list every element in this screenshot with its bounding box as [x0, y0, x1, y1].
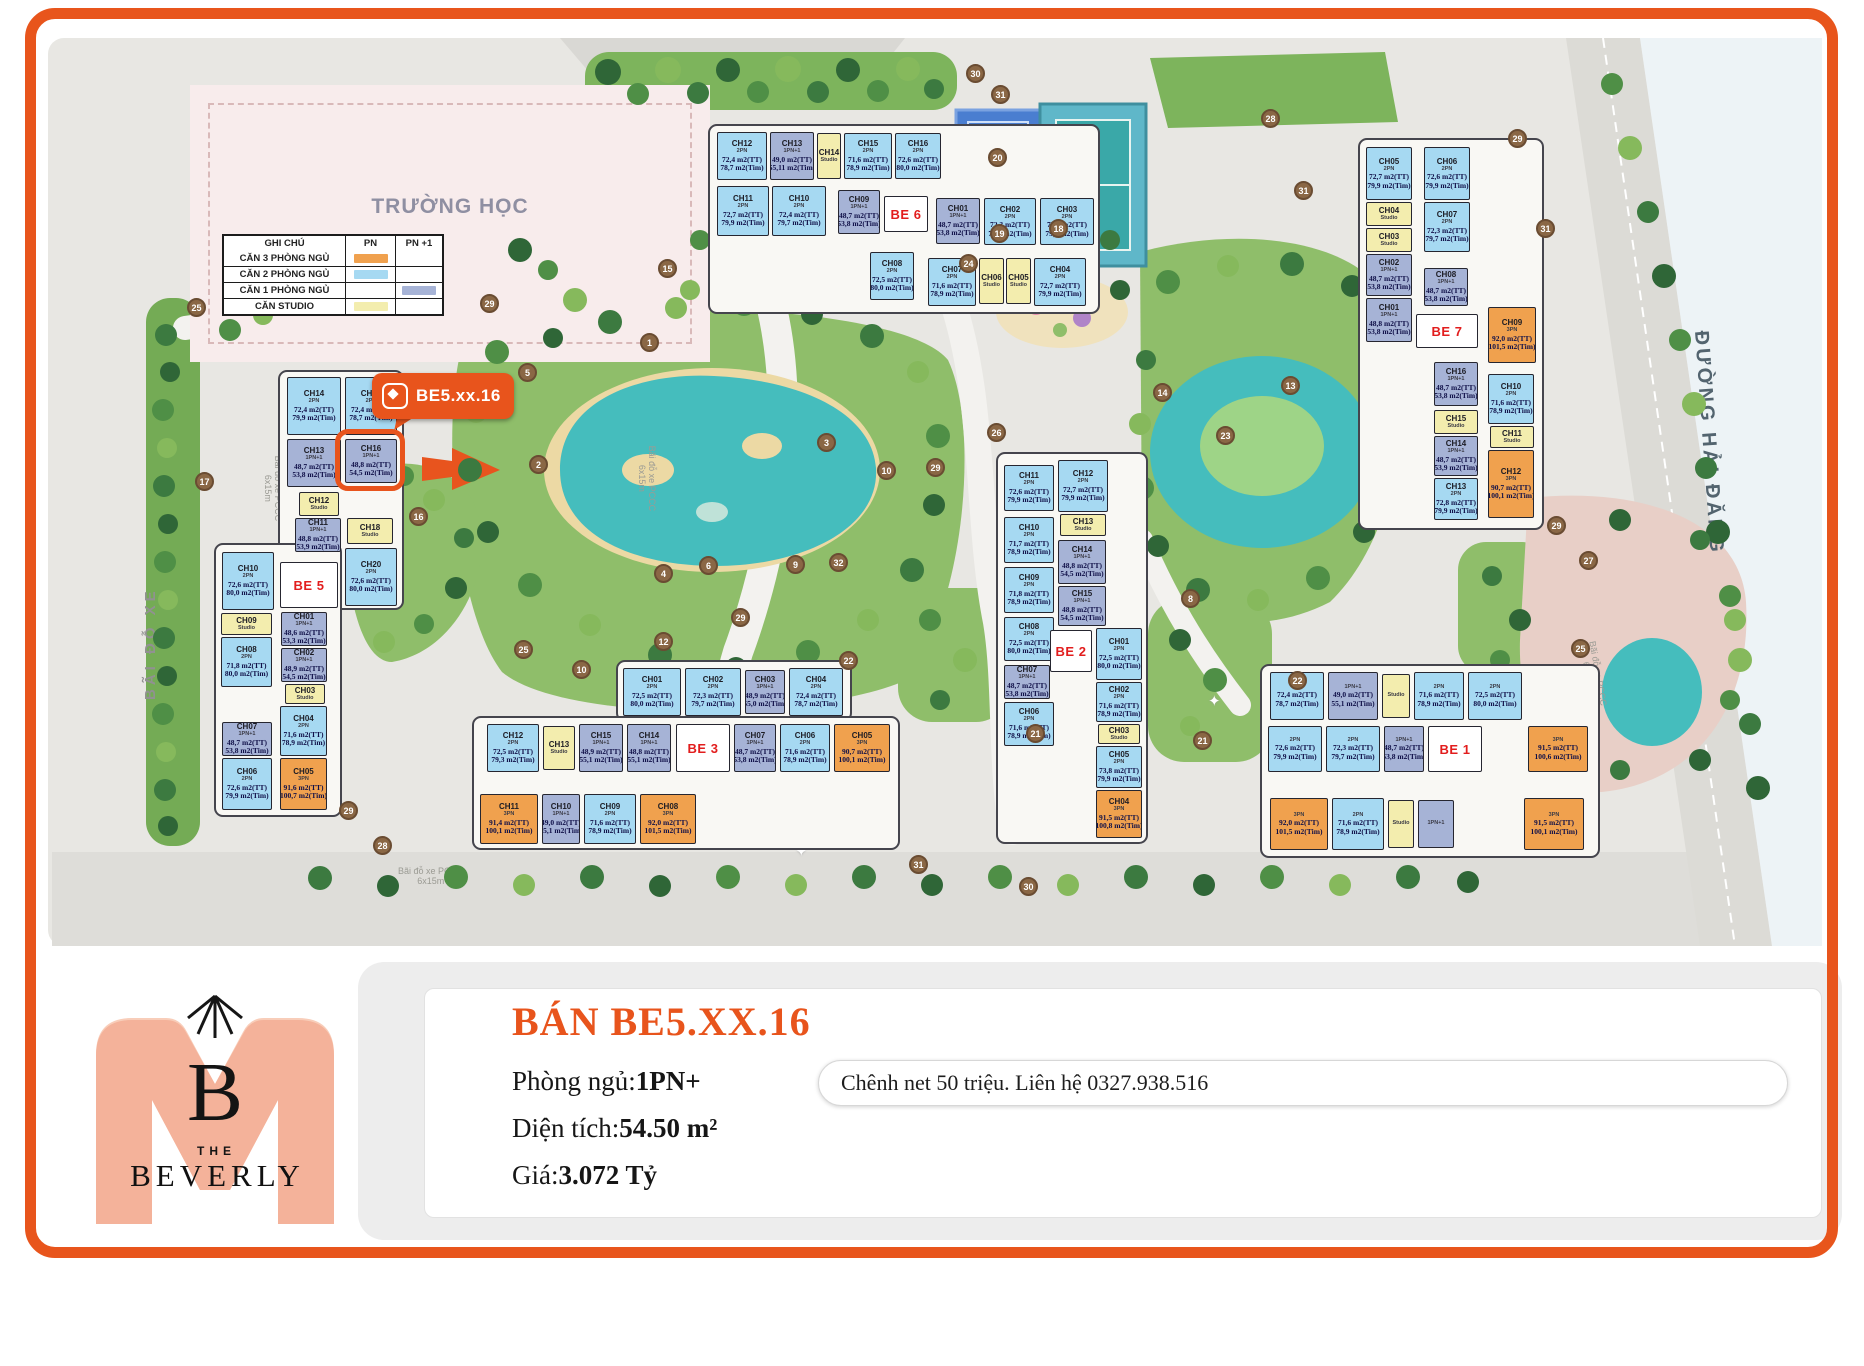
- landmark-marker-25: 25: [1571, 639, 1590, 658]
- unit-type: Studio: [238, 626, 255, 632]
- unit-CH14[interactable]: CH141PN+148,8 m2(TT)55,1 m2(Tim): [627, 724, 671, 772]
- parking-label-line2: 6x15m: [262, 456, 272, 522]
- unit-id: CH11: [1019, 472, 1039, 480]
- unit-area-tt: 71,6 m2(TT): [590, 819, 630, 827]
- tree-icon: [1695, 457, 1717, 479]
- unit-type: Studio: [820, 158, 837, 164]
- unit-area-tt: 48,7 m2(TT): [227, 739, 267, 747]
- unit-type: 2PN: [1114, 760, 1125, 766]
- tree-icon: [156, 742, 176, 762]
- unit-type: 3PN: [663, 812, 674, 818]
- unit-area-tt: 91,4 m2(TT): [489, 819, 529, 827]
- unit-id: CH10: [238, 565, 258, 573]
- unit-CH11[interactable]: CH111PN+148,8 m2(TT)53,9 m2(Tim): [295, 518, 341, 552]
- unit-CH08[interactable]: CH082PN72,5 m2(TT)80,0 m2(Tim): [870, 252, 914, 300]
- unit-CH14[interactable]: CH141PN+148,8 m2(TT)54,5 m2(Tim): [1058, 540, 1106, 584]
- unit-cell[interactable]: 3PN92,0 m2(TT)101,5 m2(Tim): [1270, 798, 1328, 850]
- unit-area-tt: 71,6 m2(TT): [848, 156, 888, 164]
- tree-icon: [377, 875, 399, 897]
- unit-id: CH02: [1109, 686, 1129, 694]
- unit-CH03[interactable]: CH03Studio: [285, 684, 325, 704]
- unit-CH14[interactable]: CH14Studio: [817, 133, 841, 179]
- unit-type: 1PN+1: [1448, 377, 1465, 383]
- unit-area-tt: 72,5 m2(TT): [632, 692, 672, 700]
- unit-area-tim: 79,9 m2(Tim): [292, 414, 335, 422]
- unit-CH09[interactable]: CH093PN92,0 m2(TT)101,5 m2(Tim): [1488, 307, 1536, 363]
- unit-CH11[interactable]: CH112PN72,7 m2(TT)79,9 m2(Tim): [717, 186, 769, 236]
- unit-type: 2PN: [1442, 220, 1453, 226]
- unit-CH09[interactable]: CH092PN71,8 m2(TT)78,9 m2(Tim): [1004, 567, 1054, 613]
- unit-area-tt: 48,7 m2(TT): [1436, 384, 1476, 392]
- unit-area-tim: 80,0 m2(Tim): [870, 284, 913, 292]
- listing-title: BÁN BE5.XX.16: [512, 998, 811, 1045]
- tree-icon: [1724, 609, 1746, 631]
- tree-icon: [454, 528, 474, 548]
- unit-area-tt: 48,8 m2(TT): [1062, 562, 1102, 570]
- unit-id: CH06: [1437, 158, 1457, 166]
- unit-CH12[interactable]: CH122PN72,5 m2(TT)79,3 m2(Tim): [487, 724, 539, 772]
- unit-area-tim: 79,9 m2(Tim): [721, 219, 764, 227]
- unit-CH09[interactable]: CH092PN71,6 m2(TT)78,9 m2(Tim): [584, 794, 636, 844]
- unit-cell[interactable]: 2PN72,3 m2(TT)79,7 m2(Tim): [1326, 726, 1380, 772]
- unit-area-tim: 78,9 m2(Tim): [1007, 598, 1050, 606]
- unit-id: CH10: [1019, 524, 1039, 532]
- tree-icon: [716, 865, 740, 889]
- unit-area-tt: 72,4 m2(TT): [722, 156, 762, 164]
- unit-type: Studio: [361, 533, 378, 539]
- unit-id: CH15: [591, 732, 611, 740]
- badge-logo-icon: [382, 383, 408, 409]
- tree-icon: [1396, 865, 1420, 889]
- unit-id: CH05: [1109, 751, 1129, 759]
- tree-icon: [747, 81, 769, 103]
- unit-CH03[interactable]: CH032PN72,6 m2(TT)79,9 m2(Tim): [1040, 198, 1094, 245]
- unit-type: 2PN: [794, 204, 805, 210]
- unit-CH20[interactable]: CH202PN72,6 m2(TT)80,0 m2(Tim): [345, 548, 397, 606]
- tree-icon: [1306, 566, 1330, 590]
- unit-type: 2PN: [800, 741, 811, 747]
- tree-icon: [157, 438, 177, 458]
- unit-area-tim: 79,9 m2(Tim): [1097, 775, 1140, 783]
- unit-area-tt: 71,6 m2(TT): [1491, 399, 1531, 407]
- unit-id: CH11: [1502, 430, 1522, 438]
- unit-area-tt: 48,7 m2(TT): [1369, 275, 1409, 283]
- tree-icon: [867, 80, 889, 102]
- unit-area-tt: 48,8 m2(TT): [1369, 320, 1409, 328]
- unit-area-tt: 72,6 m2(TT): [351, 577, 391, 585]
- unit-area-tt: 92,0 m2(TT): [648, 819, 688, 827]
- tree-icon: [153, 475, 175, 497]
- unit-area-tim: 79,9 m2(Tim): [1007, 496, 1050, 504]
- unit-CH07[interactable]: CH071PN+148,7 m2(TT)53,8 m2(Tim): [222, 722, 272, 756]
- unit-CH10[interactable]: CH101PN+149,0 m2(TT)55,1 m2(Tim): [542, 794, 580, 844]
- unit-id: CH15: [1072, 590, 1092, 598]
- legend-color-swatch: [354, 254, 388, 263]
- landmark-marker-10: 10: [877, 461, 896, 480]
- unit-type: 1PN+1: [1438, 280, 1455, 286]
- unit-CH02[interactable]: CH021PN+148,7 m2(TT)53,8 m2(Tim): [1366, 254, 1412, 296]
- unit-CH01[interactable]: CH012PN72,5 m2(TT)80,0 m2(Tim): [1096, 628, 1142, 680]
- unit-type: 3PN: [298, 777, 309, 783]
- unit-id: CH09: [236, 617, 256, 625]
- unit-CH07[interactable]: CH072PN72,3 m2(TT)79,7 m2(Tim): [1424, 202, 1470, 252]
- unit-CH16[interactable]: CH161PN+148,7 m2(TT)53,8 m2(Tim): [1434, 362, 1478, 406]
- unit-type: 2PN: [1078, 479, 1089, 485]
- unit-CH13[interactable]: CH132PN72,8 m2(TT)79,9 m2(Tim): [1434, 478, 1478, 520]
- tree-icon: [857, 609, 879, 631]
- unit-CH07[interactable]: CH071PN+148,7 m2(TT)53,8 m2(Tim): [1004, 665, 1050, 699]
- landmark-marker-27: 27: [1579, 551, 1598, 570]
- unit-area-tim: 80,0 m2(Tim): [1473, 700, 1516, 708]
- unit-area-tim: 78,9 m2(Tim): [588, 827, 631, 835]
- landmark-marker-2: 2: [529, 455, 548, 474]
- unit-area-tim: 79,7 m2(Tim): [1331, 753, 1374, 761]
- block-label-BE2[interactable]: BE 2: [1050, 630, 1092, 672]
- unit-id: CH10: [551, 803, 571, 811]
- unit-area-tim: 55,0 m2(Tim): [745, 700, 785, 708]
- selected-unit-badge[interactable]: BE5.xx.16: [372, 373, 514, 419]
- tree-icon: [1169, 629, 1191, 651]
- unit-area-tt: 48,8 m2(TT): [351, 461, 391, 469]
- unit-area-tt: 71,6 m2(TT): [1338, 819, 1378, 827]
- unit-id: CH03: [1057, 206, 1077, 214]
- unit-area-tim: 79,9 m2(Tim): [1434, 507, 1477, 515]
- legend-swatch-pn: [346, 299, 396, 314]
- unit-CH04[interactable]: CH042PN71,6 m2(TT)78,9 m2(Tim): [280, 706, 327, 756]
- tree-icon: [953, 648, 977, 672]
- unit-area-tim: 80,0 m2(Tim): [896, 164, 939, 172]
- unit-CH04[interactable]: CH042PN72,7 m2(TT)79,9 m2(Tim): [1034, 258, 1086, 306]
- unit-CH18[interactable]: CH18Studio: [347, 518, 393, 544]
- unit-type: 1PN+1: [641, 741, 658, 747]
- unit-CH12[interactable]: CH122PN72,4 m2(TT)78,7 m2(Tim): [717, 132, 767, 180]
- unit-type: Studio: [1380, 216, 1397, 222]
- landmark-marker-29: 29: [1547, 516, 1566, 535]
- block-label-text: BE 2: [1056, 645, 1087, 658]
- unit-area-tt: 71,7 m2(TT): [1009, 540, 1049, 548]
- unit-area-tim: 100,7 m2(Tim): [280, 792, 327, 800]
- tree-icon: [1689, 749, 1711, 771]
- unit-CH14[interactable]: CH142PN72,4 m2(TT)79,9 m2(Tim): [287, 377, 341, 435]
- landmark-marker-30: 30: [966, 64, 985, 83]
- unit-area-tt: 49,0 m2(TT): [1333, 691, 1373, 699]
- unit-id: CH02: [294, 649, 314, 657]
- unit-id: CH05: [1379, 158, 1399, 166]
- unit-CH10[interactable]: CH102PN71,6 m2(TT)78,9 m2(Tim): [1488, 374, 1534, 424]
- unit-id: CH04: [806, 676, 826, 684]
- unit-id: CH15: [1446, 415, 1466, 423]
- unit-CH07[interactable]: CH071PN+148,7 m2(TT)53,8 m2(Tim): [734, 724, 776, 772]
- unit-area-tt: 72,5 m2(TT): [1099, 654, 1139, 662]
- unit-CH04[interactable]: CH04Studio: [1366, 202, 1412, 226]
- legend-row-label: CĂN 3 PHÒNG NGỦ: [224, 251, 346, 266]
- legend-color-swatch: [354, 270, 388, 279]
- tree-icon: [716, 58, 740, 82]
- legend-row: CĂN 3 PHÒNG NGỦ: [224, 251, 442, 266]
- unit-id: CH09: [1019, 574, 1039, 582]
- unit-area-tt: 48,7 m2(TT): [294, 463, 334, 471]
- unit-type: 2PN: [242, 777, 253, 783]
- unit-CH05[interactable]: CH053PN90,7 m2(TT)100,1 m2(Tim): [834, 724, 890, 772]
- landmark-marker-18: 18: [1049, 219, 1068, 238]
- unit-CH03[interactable]: CH03Studio: [1098, 724, 1140, 744]
- unit-cell[interactable]: Studio: [1388, 800, 1414, 848]
- block-label-BE6[interactable]: BE 6: [884, 196, 928, 232]
- listing-info-value: 54.50 m²: [619, 1113, 717, 1144]
- unit-type: Studio: [550, 750, 567, 756]
- legend-color-swatch: [354, 302, 388, 311]
- unit-area-tim: 100,8 m2(Tim): [1096, 822, 1142, 830]
- unit-area-tt: 71,6 m2(TT): [284, 731, 324, 739]
- unit-CH06[interactable]: CH062PN71,6 m2(TT)78,9 m2(Tim): [780, 724, 830, 772]
- landmark-marker-28: 28: [373, 836, 392, 855]
- tree-icon: [1156, 270, 1180, 294]
- unit-cell[interactable]: 1PN+148,7 m2(TT)53,8 m2(Tim): [1384, 726, 1424, 772]
- unit-CH13[interactable]: CH13Studio: [1060, 514, 1106, 536]
- unit-area-tim: 80,0 m2(Tim): [630, 700, 673, 708]
- unit-id: CH16: [1446, 368, 1466, 376]
- unit-CH11[interactable]: CH112PN72,6 m2(TT)79,9 m2(Tim): [1004, 465, 1054, 511]
- unit-area-tt: 48,7 m2(TT): [938, 221, 978, 229]
- unit-CH15[interactable]: CH152PN71,6 m2(TT)78,9 m2(Tim): [844, 133, 892, 179]
- tree-icon: [155, 324, 177, 346]
- unit-type: Studio: [1074, 527, 1091, 533]
- landmark-marker-6: 6: [699, 556, 718, 575]
- unit-area-tt: 90,7 m2(TT): [842, 748, 882, 756]
- unit-cell[interactable]: 1PN+1: [1418, 800, 1454, 848]
- unit-CH08[interactable]: CH082PN71,8 m2(TT)80,0 m2(Tim): [221, 637, 272, 687]
- unit-CH11[interactable]: CH113PN91,4 m2(TT)100,1 m2(Tim): [480, 794, 538, 844]
- legend-swatch-pn1: [396, 283, 442, 298]
- unit-area-tt: 71,8 m2(TT): [1009, 590, 1049, 598]
- unit-type: 1PN+1: [296, 622, 313, 628]
- unit-type: 2PN: [863, 149, 874, 155]
- unit-CH01[interactable]: CH011PN+148,7 m2(TT)53,8 m2(Tim): [936, 198, 980, 244]
- unit-CH06[interactable]: CH06Studio: [979, 258, 1004, 304]
- unit-id: CH12: [1501, 468, 1521, 476]
- landmark-marker-22: 22: [1288, 671, 1307, 690]
- landmark-marker-20: 20: [988, 148, 1007, 167]
- unit-area-tim: 54,5 m2(Tim): [349, 469, 392, 477]
- tree-icon: [1100, 230, 1120, 250]
- unit-CH13[interactable]: CH131PN+148,7 m2(TT)53,8 m2(Tim): [287, 439, 341, 487]
- unit-CH12[interactable]: CH12Studio: [299, 492, 339, 516]
- landmark-marker-15: 15: [658, 259, 677, 278]
- unit-type: 1PN+1: [553, 812, 570, 818]
- tree-icon: [775, 56, 801, 82]
- unit-CH09[interactable]: CH091PN+148,7 m2(TT)53,8 m2(Tim): [838, 190, 880, 234]
- unit-area-tt: 91,5 m2(TT): [1099, 814, 1139, 822]
- listing-info-value: 3.072 Tỷ: [559, 1160, 658, 1191]
- unit-CH01[interactable]: CH012PN72,5 m2(TT)80,0 m2(Tim): [623, 668, 681, 716]
- unit-id: CH04: [293, 715, 313, 723]
- unit-type: 2PN: [738, 204, 749, 210]
- unit-id: CH04: [1379, 207, 1399, 215]
- block-label-BE5[interactable]: BE 5: [280, 562, 338, 608]
- unit-cell[interactable]: 2PN71,6 m2(TT)78,9 m2(Tim): [1332, 798, 1384, 850]
- unit-area-tt: 48,6 m2(TT): [284, 629, 324, 637]
- unit-area-tim: 54,5 m2(Tim): [282, 673, 325, 681]
- tree-icon: [444, 865, 468, 889]
- unit-area-tim: 80,0 m2(Tim): [225, 670, 268, 678]
- unit-area-tim: 78,9 m2(Tim): [846, 164, 889, 172]
- tree-icon: [924, 79, 944, 99]
- unit-CH08[interactable]: CH082PN72,5 m2(TT)80,0 m2(Tim): [1004, 617, 1054, 661]
- tree-icon: [1618, 136, 1642, 160]
- unit-CH05[interactable]: CH05Studio: [1006, 258, 1031, 304]
- unit-area-tim: 79,9 m2(Tim): [1425, 182, 1468, 190]
- unit-id: CH06: [795, 732, 815, 740]
- block-label-BE1[interactable]: BE 1: [1428, 726, 1482, 772]
- unit-CH15[interactable]: CH151PN+148,8 m2(TT)54,5 m2(Tim): [1058, 586, 1106, 626]
- unit-CH14[interactable]: CH141PN+148,7 m2(TT)53,9 m2(Tim): [1434, 436, 1478, 476]
- unit-CH03[interactable]: CH03Studio: [1366, 228, 1412, 252]
- badge-label: BE5.xx.16: [416, 386, 501, 406]
- unit-id: CH03: [1109, 727, 1129, 735]
- tree-icon: [665, 297, 687, 319]
- unit-area-tt: 72,7 m2(TT): [1063, 486, 1103, 494]
- legend-swatch-pn: [346, 251, 396, 266]
- unit-area-tt: 72,4 m2(TT): [796, 692, 836, 700]
- unit-CH15[interactable]: CH151PN+148,9 m2(TT)55,1 m2(Tim): [579, 724, 623, 772]
- unit-CH02[interactable]: CH022PN71,6 m2(TT)78,9 m2(Tim): [1096, 682, 1142, 722]
- unit-area-tt: 92,0 m2(TT): [1492, 335, 1532, 343]
- unit-CH13[interactable]: CH13Studio: [543, 726, 575, 770]
- unit-CH12[interactable]: CH123PN90,7 m2(TT)100,1 m2(Tim): [1488, 450, 1534, 518]
- tree-icon: [160, 362, 180, 382]
- unit-id: CH14: [1072, 546, 1092, 554]
- unit-cell[interactable]: 2PN72,5 m2(TT)80,0 m2(Tim): [1468, 672, 1522, 720]
- unit-id: CH09: [600, 803, 620, 811]
- tree-icon: [1652, 264, 1676, 288]
- unit-CH16[interactable]: CH161PN+148,8 m2(TT)54,5 m2(Tim): [345, 439, 397, 483]
- tree-icon: [154, 779, 176, 801]
- tree-icon: [477, 521, 499, 543]
- unit-cell[interactable]: 3PN91,5 m2(TT)100,1 m2(Tim): [1524, 798, 1584, 850]
- landmark-marker-28: 28: [1261, 109, 1280, 128]
- unit-CH10[interactable]: CH102PN71,7 m2(TT)78,9 m2(Tim): [1004, 517, 1054, 563]
- landmark-marker-10: 10: [572, 660, 591, 679]
- unit-type: 2PN: [737, 149, 748, 155]
- unit-CH05[interactable]: CH052PN73,8 m2(TT)79,9 m2(Tim): [1096, 746, 1142, 788]
- unit-cell[interactable]: 3PN91,5 m2(TT)100,6 m2(Tim): [1528, 726, 1588, 772]
- unit-CH02[interactable]: CH021PN+148,9 m2(TT)54,5 m2(Tim): [281, 648, 327, 682]
- unit-CH15[interactable]: CH15Studio: [1434, 410, 1478, 434]
- tree-icon: [485, 340, 509, 364]
- unit-area-tim: 79,3 m2(Tim): [491, 756, 534, 764]
- unit-CH10[interactable]: CH102PN72,6 m2(TT)80,0 m2(Tim): [222, 552, 274, 610]
- unit-CH05[interactable]: CH053PN91,6 m2(TT)100,7 m2(Tim): [280, 758, 327, 810]
- unit-area-tt: 72,7 m2(TT): [723, 211, 763, 219]
- listing-info-label: Phòng ngủ:: [512, 1066, 636, 1097]
- unit-CH13[interactable]: CH131PN+149,0 m2(TT)55,11 m2(Tim): [770, 132, 814, 180]
- unit-CH04[interactable]: CH043PN91,5 m2(TT)100,8 m2(Tim): [1096, 790, 1142, 838]
- unit-id: CH03: [1379, 233, 1399, 241]
- landmark-marker-25: 25: [514, 640, 533, 659]
- unit-CH06[interactable]: CH062PN72,6 m2(TT)79,9 m2(Tim): [1424, 147, 1470, 200]
- unit-cell[interactable]: 2PN72,6 m2(TT)79,9 m2(Tim): [1268, 726, 1322, 772]
- tree-icon: [1509, 609, 1531, 631]
- landmark-marker-22: 22: [839, 651, 858, 670]
- unit-CH09[interactable]: CH09Studio: [221, 613, 272, 635]
- legend-header-pn: PN: [346, 236, 396, 251]
- unit-CH02[interactable]: CH022PN72,3 m2(TT)79,7 m2(Tim): [685, 668, 741, 716]
- unit-CH01[interactable]: CH011PN+148,6 m2(TT)53,3 m2(Tim): [281, 612, 327, 646]
- unit-CH05[interactable]: CH052PN72,7 m2(TT)79,9 m2(Tim): [1366, 147, 1412, 200]
- block-label-BE3[interactable]: BE 3: [676, 724, 730, 772]
- landmark-marker-25: 25: [187, 298, 206, 317]
- unit-CH11[interactable]: CH11Studio: [1490, 426, 1534, 448]
- block-label-BE7[interactable]: BE 7: [1416, 314, 1478, 348]
- unit-CH03[interactable]: CH031PN+148,9 m2(TT)55,0 m2(Tim): [745, 670, 785, 714]
- unit-area-tt: 48,9 m2(TT): [284, 665, 324, 673]
- landmark-marker-1: 1: [640, 333, 659, 352]
- legend-table: GHI CHÚ PN PN +1 CĂN 3 PHÒNG NGỦCĂN 2 PH…: [222, 234, 444, 316]
- tree-icon: [1609, 509, 1631, 531]
- unit-area-tim: 80,0 m2(Tim): [226, 589, 269, 597]
- brand-the: THE: [197, 1144, 236, 1158]
- unit-type: 2PN: [811, 685, 822, 691]
- landmark-marker-29: 29: [731, 608, 750, 627]
- tree-icon: [595, 59, 621, 85]
- unit-type: Studio: [1110, 736, 1127, 742]
- unit-type: 3PN: [857, 741, 868, 747]
- unit-type: Studio: [983, 283, 1000, 289]
- unit-type: 1PN+1: [1074, 599, 1091, 605]
- unit-area-tim: 101,5 m2(Tim): [645, 827, 692, 835]
- landmark-marker-19: 19: [990, 224, 1009, 243]
- tree-icon: [152, 703, 174, 725]
- tree-icon: [1280, 252, 1304, 276]
- unit-area-tim: 78,9 m2(Tim): [930, 290, 973, 298]
- unit-area-tim: 53,9 m2(Tim): [1434, 464, 1477, 472]
- unit-id: CH06: [981, 274, 1001, 282]
- unit-area-tt: 72,7 m2(TT): [1369, 173, 1409, 181]
- tree-icon: [1719, 585, 1741, 607]
- unit-CH01[interactable]: CH011PN+148,8 m2(TT)53,8 m2(Tim): [1366, 298, 1412, 342]
- tree-icon: [836, 58, 860, 82]
- tree-icon: [1110, 280, 1130, 300]
- unit-id: CH03: [755, 676, 775, 684]
- tree-icon: [1682, 392, 1706, 416]
- tree-icon: [988, 865, 1012, 889]
- page: TRƯỜNG HỌC GHI CHÚ PN PN +1 CĂN 3 PHÒNG …: [0, 0, 1864, 1366]
- unit-area-tim: 54,5 m2(Tim): [1060, 570, 1103, 578]
- unit-area-tim: 55,1 m2(Tim): [579, 756, 622, 764]
- unit-area-tim: 80,0 m2(Tim): [349, 585, 392, 593]
- unit-CH08[interactable]: CH081PN+148,7 m2(TT)53,8 m2(Tim): [1424, 268, 1468, 306]
- landmark-marker-31: 31: [991, 85, 1010, 104]
- unit-CH16[interactable]: CH162PN72,6 m2(TT)80,0 m2(Tim): [895, 133, 941, 179]
- unit-id: CH13: [1446, 483, 1466, 491]
- landmark-marker-13: 13: [1281, 376, 1300, 395]
- unit-id: CH09: [1502, 319, 1522, 327]
- unit-CH04[interactable]: CH042PN72,4 m2(TT)78,7 m2(Tim): [789, 668, 843, 716]
- unit-CH08[interactable]: CH083PN92,0 m2(TT)101,5 m2(Tim): [640, 794, 696, 844]
- unit-type: 3PN: [1506, 477, 1517, 483]
- unit-area-tim: 80,0 m2(Tim): [1007, 647, 1050, 655]
- unit-CH12[interactable]: CH122PN72,7 m2(TT)79,9 m2(Tim): [1058, 460, 1108, 512]
- contact-note-input[interactable]: Chênh net 50 triệu. Liên hệ 0327.938.516: [818, 1060, 1788, 1106]
- tree-icon: [1124, 865, 1148, 889]
- tree-icon: [219, 319, 241, 341]
- unit-CH06[interactable]: CH062PN72,6 m2(TT)79,9 m2(Tim): [222, 758, 272, 810]
- unit-cell[interactable]: 1PN+149,0 m2(TT)55,1 m2(Tim): [1328, 672, 1378, 720]
- unit-cell[interactable]: Studio: [1382, 674, 1410, 718]
- unit-type: 2PN: [243, 574, 254, 580]
- unit-CH10[interactable]: CH102PN72,4 m2(TT)79,7 m2(Tim): [772, 186, 826, 236]
- unit-cell[interactable]: 2PN71,6 m2(TT)78,9 m2(Tim): [1414, 672, 1464, 720]
